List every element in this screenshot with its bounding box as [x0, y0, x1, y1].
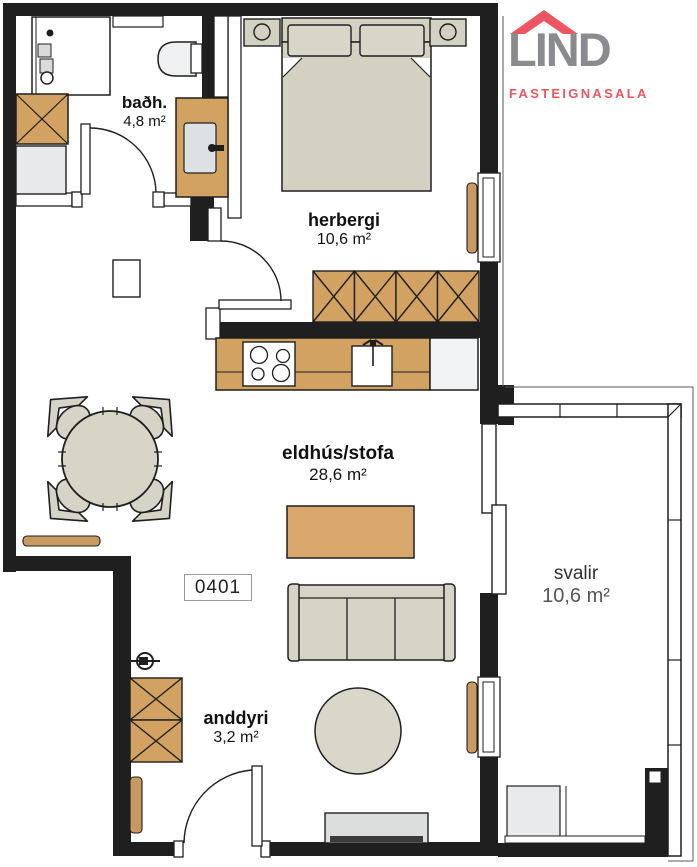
room-label-balcony: svalir 10,6 m² [521, 563, 631, 608]
entry-door [184, 766, 262, 846]
nightstand-left [244, 19, 280, 46]
nightstand-right [430, 19, 466, 46]
wall-shelf [113, 16, 163, 27]
room-area: 10,6 m² [284, 231, 404, 249]
room-area: 3,2 m² [176, 729, 296, 747]
logo-tagline: FASTEIGNASALA [509, 86, 649, 101]
shower [32, 17, 110, 95]
sliding-door [482, 424, 506, 594]
agency-logo: LIND FASTEIGNASALA [506, 6, 691, 106]
room-name: eldhús/stofa [268, 443, 408, 465]
room-area: 10,6 m² [521, 585, 631, 608]
entry-wardrobe [130, 678, 182, 762]
living-room [23, 260, 477, 843]
balcony-railing-top [498, 404, 681, 417]
dining-chair [117, 380, 189, 452]
balcony [482, 387, 693, 861]
room-name: baðh. [92, 93, 197, 113]
double-bed [282, 18, 431, 191]
toilet [158, 42, 202, 76]
kitchen-appliance [430, 338, 478, 390]
bedroom-door [206, 208, 291, 339]
windows [478, 16, 503, 757]
dining-chair [117, 466, 189, 538]
room-area: 4,8 m² [92, 113, 197, 130]
room-label-entry: anddyri 3,2 m² [176, 708, 296, 747]
dining-chair [31, 380, 103, 452]
radiator-bedroom [467, 183, 477, 253]
radiator-dining [23, 536, 100, 546]
room-label-kitchen-living: eldhús/stofa 28,6 m² [268, 443, 408, 485]
sofa [288, 584, 455, 661]
bedroom-wardrobe [313, 271, 479, 322]
radiator-entry [130, 777, 142, 833]
unit-number-badge: 0401 [184, 574, 252, 601]
bedroom-furniture [244, 18, 479, 322]
room-area: 28,6 m² [268, 465, 408, 485]
washing-machine [16, 146, 66, 194]
bathroom-door [81, 124, 156, 194]
dining-set [31, 380, 189, 538]
tv-stand [325, 813, 428, 843]
floorplan-page: { "brand": { "name": "LIND", "tagline": … [0, 0, 697, 867]
room-name: anddyri [176, 708, 296, 729]
entry-area [130, 653, 182, 833]
balcony-storage-box [507, 786, 560, 838]
kitchen [216, 338, 478, 390]
walls [3, 3, 668, 857]
balcony-railing-right [668, 404, 681, 856]
duct-shaft [113, 260, 140, 297]
kitchen-counter [216, 338, 430, 390]
kitchen-sink [352, 340, 392, 386]
dining-chair [31, 466, 103, 538]
room-name: svalir [521, 563, 631, 585]
dining-table [62, 411, 158, 507]
floorplan-drawing [0, 0, 697, 867]
radiator-living [467, 682, 477, 753]
valve-symbol [130, 653, 160, 669]
coffee-table [287, 506, 414, 558]
room-label-bathroom: baðh. 4,8 m² [92, 93, 197, 130]
bathroom-cabinet [16, 94, 68, 144]
stove [243, 342, 295, 386]
room-name: herbergi [284, 210, 404, 231]
room-label-bedroom: herbergi 10,6 m² [284, 210, 404, 249]
round-rug [315, 688, 401, 774]
logo-wordmark: LIND [508, 26, 610, 73]
